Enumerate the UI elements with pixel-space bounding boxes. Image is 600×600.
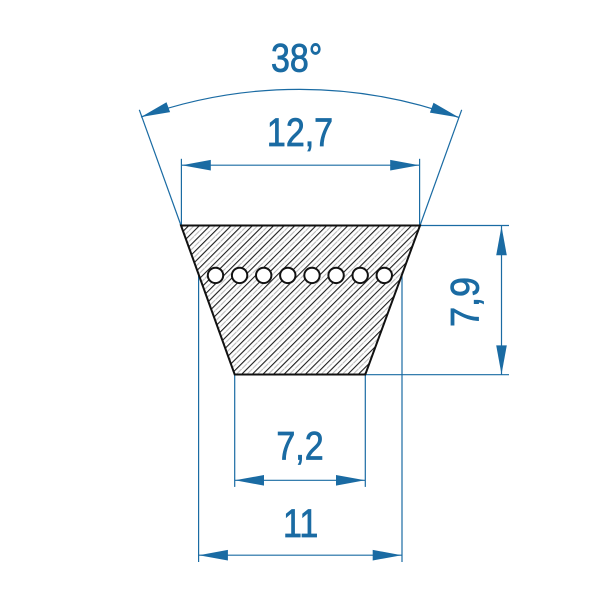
svg-text:38°: 38° (271, 35, 322, 80)
svg-text:11: 11 (283, 500, 318, 545)
svg-text:12,7: 12,7 (267, 109, 333, 154)
svg-text:7,2: 7,2 (276, 423, 323, 468)
svg-text:7,9: 7,9 (444, 277, 488, 327)
